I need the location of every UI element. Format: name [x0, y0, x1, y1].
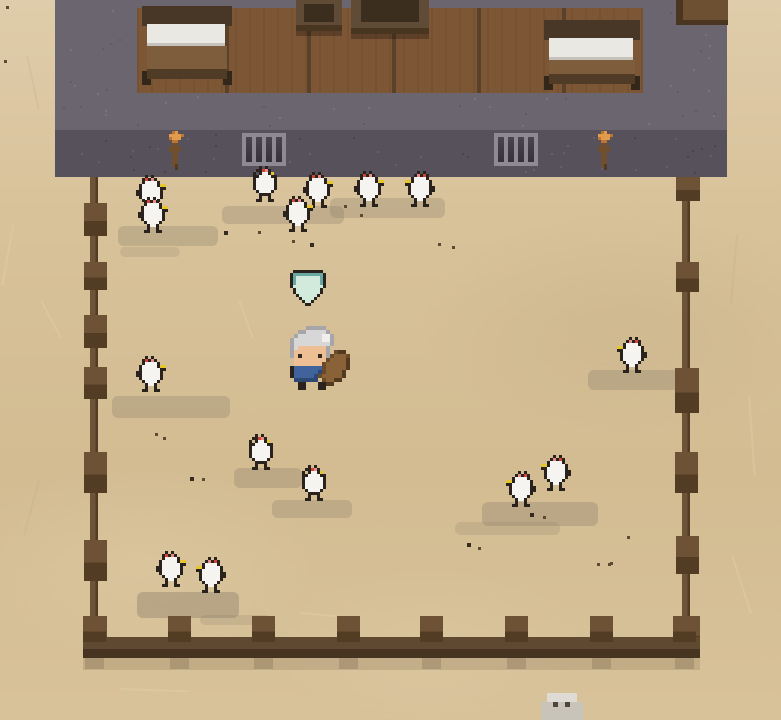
stone-speckle [525, 171, 527, 173]
rock-body [541, 702, 583, 720]
stone-speckle [560, 166, 562, 168]
stone-speckle [708, 57, 710, 59]
stone-speckle [459, 105, 461, 107]
stone-speckle [105, 110, 107, 112]
cabinet-base [676, 20, 728, 25]
stone-speckle [709, 45, 711, 47]
debris-dot [202, 478, 205, 481]
debris-dot [452, 246, 455, 249]
stone-speckle [165, 102, 167, 104]
stone-speckle [551, 153, 553, 155]
dirt-patch [112, 396, 230, 418]
stone-speckle [565, 98, 567, 100]
debris-dot [258, 231, 261, 234]
stone-speckle [666, 166, 668, 168]
debris-dot [6, 6, 9, 9]
stone-speckle [105, 140, 107, 142]
stone-speckle [164, 171, 166, 173]
fence-post-shadow [170, 658, 189, 669]
stone-speckle [133, 169, 135, 171]
player-character-pixels [282, 326, 286, 330]
torch-icon [592, 131, 619, 170]
stone-speckle [157, 148, 159, 150]
stone-speckle [81, 153, 83, 155]
bed [142, 6, 232, 85]
dirt-patch [120, 247, 180, 257]
stone-speckle [474, 98, 476, 100]
fence-post [676, 177, 700, 201]
chicken[interactable] [193, 557, 226, 593]
fence-post [337, 616, 360, 642]
chicken-pixels [354, 171, 357, 174]
chicken[interactable] [299, 465, 332, 501]
player-character[interactable] [282, 326, 354, 390]
furniture-inner [361, 0, 419, 22]
fence-post [676, 536, 699, 574]
stone-speckle [714, 113, 716, 115]
rock-cap [547, 693, 577, 702]
cabinet [676, 0, 728, 25]
fence-post [505, 616, 528, 642]
fence-post [84, 367, 107, 399]
stone-speckle [279, 117, 281, 119]
stone-speckle [130, 156, 132, 158]
stone-speckle [522, 125, 524, 127]
stone-speckle [333, 108, 335, 110]
fence-post-shadow [339, 658, 358, 669]
stone-speckle [467, 156, 469, 158]
dirt-patch [272, 500, 352, 518]
stone-speckle [714, 145, 716, 147]
stone-speckle [149, 146, 151, 148]
chicken[interactable] [250, 166, 283, 202]
chicken-pixels [303, 172, 306, 175]
stone-speckle [708, 90, 710, 92]
stone-speckle [395, 164, 397, 166]
chicken-pixels [299, 465, 302, 468]
fence-post [168, 616, 191, 642]
rock-eye [565, 702, 570, 707]
stone-speckle [489, 106, 491, 108]
window-interior [246, 137, 282, 162]
torch-icon [163, 131, 190, 170]
stone-speckle [132, 150, 134, 152]
fence-post [420, 616, 443, 642]
window-bar [262, 137, 266, 162]
stone-speckle [215, 145, 217, 147]
stone-speckle [693, 69, 695, 71]
fence-rail-bottom-dark [83, 649, 700, 658]
plank-line [477, 8, 481, 93]
fence-post-shadow [422, 658, 441, 669]
stone-speckle [710, 155, 712, 157]
fence-post [590, 616, 613, 642]
stone-speckle [299, 138, 301, 140]
chicken-pixels [538, 455, 541, 458]
stone-speckle [98, 161, 100, 163]
chicken-pixels [246, 434, 249, 437]
furniture-floor-shadow [296, 31, 342, 36]
stone-speckle [205, 171, 207, 173]
fence-post [84, 315, 107, 348]
stone-speckle [675, 138, 677, 140]
window-interior [498, 137, 534, 162]
debris-dot [530, 513, 534, 517]
chicken-pixels [136, 356, 139, 359]
stone-speckle [634, 137, 636, 139]
stone-speckle [377, 151, 379, 153]
dirt-patch [588, 370, 680, 390]
debris-dot [4, 60, 7, 63]
fence-post-shadow [85, 658, 104, 669]
chicken[interactable] [503, 471, 536, 507]
stone-speckle [309, 153, 311, 155]
window-bar [252, 137, 256, 162]
stone-speckle [269, 125, 271, 127]
debris-dot [292, 240, 295, 243]
stone-speckle [215, 134, 217, 136]
stone-speckle [197, 96, 199, 98]
stone-speckle [289, 161, 291, 163]
chicken-pixels [402, 171, 405, 174]
stone-speckle [80, 106, 82, 108]
debris-dot [597, 563, 600, 566]
stone-speckle [105, 114, 107, 116]
chicken-pixels [250, 166, 253, 169]
fence-post-shadow [675, 658, 694, 669]
stone-speckle [567, 145, 569, 147]
quest-marker-icon [290, 270, 326, 306]
stone-speckle [635, 169, 637, 171]
bed-frame [147, 46, 227, 70]
stone-speckle [705, 34, 707, 36]
chicken-pixels [614, 337, 617, 340]
fence-post-shadow [254, 658, 273, 669]
chicken[interactable] [538, 455, 571, 491]
chicken[interactable] [402, 171, 435, 207]
debris-dot [543, 516, 546, 519]
fence-post-shadow [592, 658, 611, 669]
window-bar [504, 137, 508, 162]
stone-speckle [677, 91, 679, 93]
chicken[interactable] [138, 197, 171, 233]
stone-speckle [70, 49, 72, 51]
debris-dot [438, 243, 441, 246]
bed-footboard [147, 69, 227, 79]
fence-post-shadow [507, 658, 526, 669]
debris-dot [467, 543, 471, 547]
quest-marker-icon-pixels [290, 270, 293, 273]
debris-dot [627, 536, 630, 539]
stone-speckle [695, 110, 697, 112]
stone-speckle [420, 156, 422, 158]
window-bar [514, 137, 518, 162]
chicken-pixels [193, 557, 196, 560]
stone-speckle [670, 12, 672, 14]
stone-speckle [102, 48, 104, 50]
chicken[interactable] [246, 434, 279, 470]
fence-post [84, 262, 107, 290]
stone-speckle [546, 98, 548, 100]
rock-eye [553, 702, 558, 707]
stone-speckle [687, 156, 689, 158]
chicken-pixels [503, 471, 506, 474]
bed-headboard [544, 20, 640, 40]
chicken[interactable] [156, 551, 189, 587]
furniture-inner [304, 4, 334, 22]
debris-dot [360, 214, 363, 217]
wall-band [55, 130, 727, 177]
window-barred [242, 133, 286, 166]
stone-speckle [112, 10, 114, 12]
stone-speckle [63, 107, 65, 109]
fence-post [84, 203, 107, 236]
stone-speckle [563, 152, 565, 154]
chicken[interactable] [283, 196, 316, 232]
bed [544, 20, 640, 90]
debris-dot [190, 477, 194, 481]
stone-speckle [648, 123, 650, 125]
stone-speckle [263, 106, 265, 108]
dirt-patch [234, 468, 302, 488]
stone-speckle [363, 123, 365, 125]
debris-dot [344, 205, 347, 208]
stone-speckle [110, 43, 112, 45]
window-barred [494, 133, 538, 166]
stone-speckle [713, 115, 715, 117]
bed-frame [549, 60, 635, 75]
chicken[interactable] [354, 171, 387, 207]
stone-speckle [701, 148, 703, 150]
stone-speckle [462, 153, 464, 155]
fence-post [675, 368, 699, 413]
window-bar [524, 137, 528, 162]
dirt-patch [455, 522, 560, 535]
stone-speckle [137, 124, 139, 126]
fence-post [84, 540, 107, 581]
chicken-pixels [136, 175, 139, 178]
fence-post [673, 616, 696, 642]
stone-speckle [525, 113, 527, 115]
torch-icon-pixels [592, 131, 595, 134]
chicken[interactable] [614, 337, 647, 373]
stone-speckle [106, 89, 108, 91]
stone-speckle [700, 50, 702, 52]
stone-speckle [682, 115, 684, 117]
debris-dot [310, 243, 314, 247]
debris-dot [478, 547, 481, 550]
stone-speckle [97, 93, 99, 95]
fence-post [252, 616, 275, 642]
stone-speckle [533, 169, 535, 171]
fence-post [676, 262, 699, 292]
chicken[interactable] [136, 356, 169, 392]
furniture-floor-shadow [351, 34, 429, 39]
fence-post [675, 452, 698, 493]
debris-dot [163, 437, 166, 440]
stone-speckle [368, 107, 370, 109]
stone-speckle [74, 85, 76, 87]
stone-speckle [353, 137, 355, 139]
chicken-pixels [156, 551, 159, 554]
chicken-pixels [283, 196, 286, 199]
fence-post [83, 616, 106, 642]
debris-dot [155, 433, 158, 436]
furniture-chair [296, 0, 342, 31]
stone-speckle [694, 172, 696, 174]
bed-footboard [549, 74, 635, 84]
torch-icon-pixels [163, 131, 166, 134]
debris-dot [608, 563, 611, 566]
debris-dot [224, 231, 228, 235]
stone-speckle [70, 81, 72, 83]
chicken-pixels [138, 197, 141, 200]
stone-speckle [213, 158, 215, 160]
stone-speckle [119, 39, 121, 41]
stone-speckle [692, 150, 694, 152]
rock-creature[interactable] [541, 693, 583, 720]
window-bar [272, 137, 276, 162]
fence-post [84, 452, 107, 493]
bed-headboard [142, 6, 232, 26]
stone-speckle [670, 85, 672, 87]
game-viewport[interactable] [0, 0, 781, 720]
furniture-table [351, 0, 429, 34]
